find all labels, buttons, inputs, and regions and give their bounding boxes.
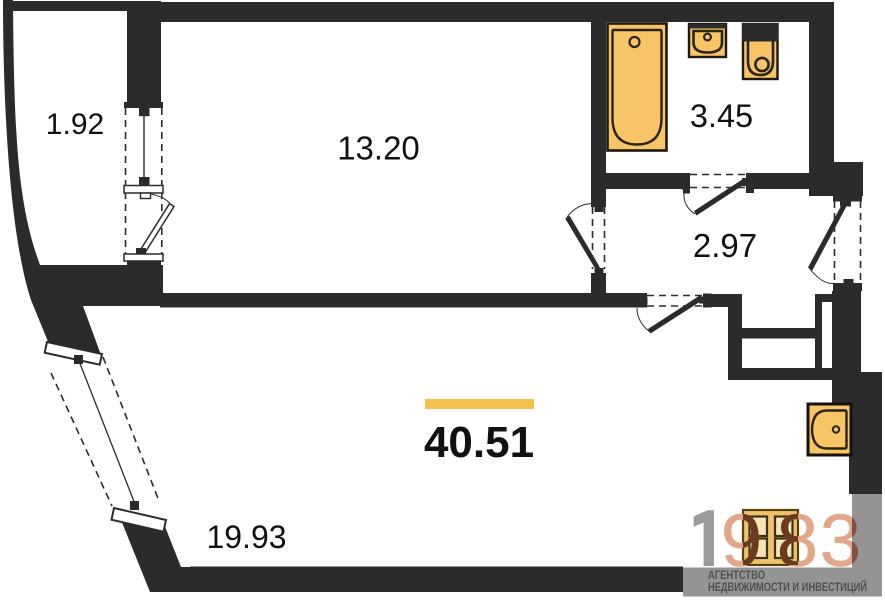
svg-text:2.97: 2.97 — [693, 227, 757, 264]
svg-text:НЕДВИЖИМОСТИ И ИНВЕСТИЦИЙ: НЕДВИЖИМОСТИ И ИНВЕСТИЦИЙ — [708, 579, 867, 594]
svg-text:19.93: 19.93 — [206, 519, 286, 555]
svg-text:1.92: 1.92 — [46, 108, 104, 141]
svg-text:13.20: 13.20 — [337, 130, 420, 167]
svg-text:3.45: 3.45 — [690, 98, 753, 134]
svg-text:40.51: 40.51 — [424, 418, 534, 467]
